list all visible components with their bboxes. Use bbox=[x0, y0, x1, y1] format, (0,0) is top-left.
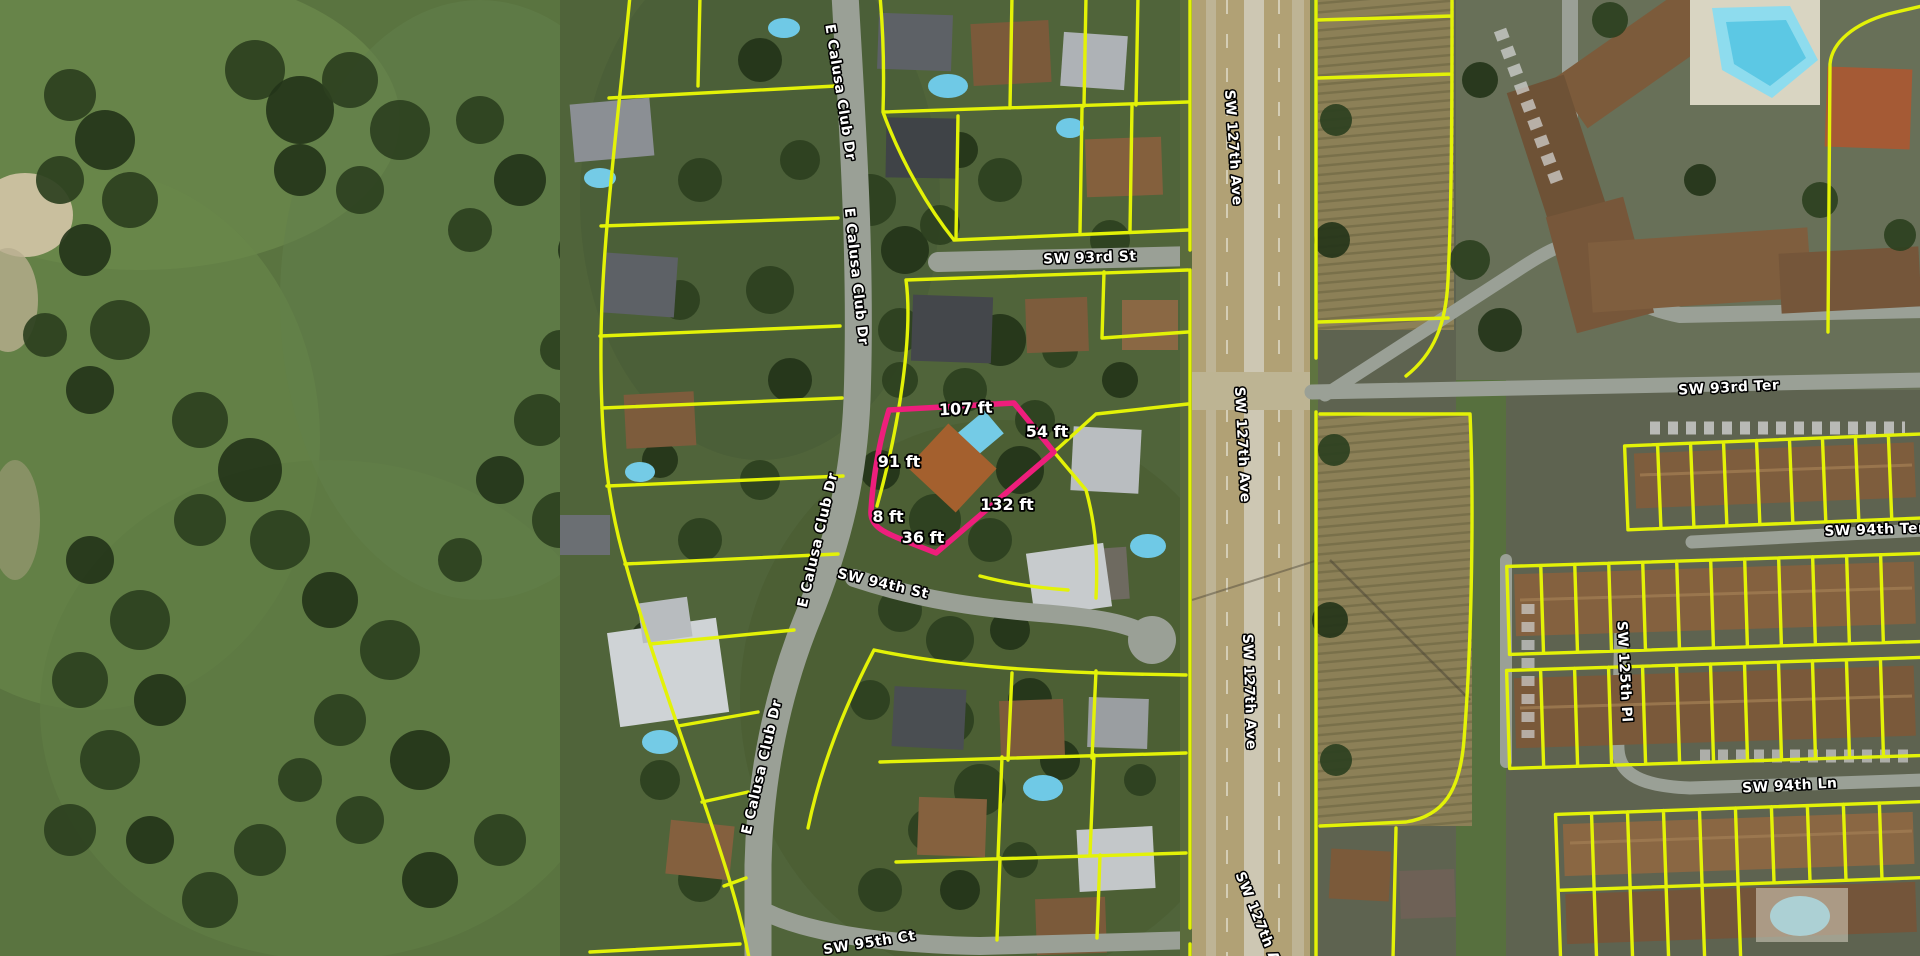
dim-label-107ft: 107 ft bbox=[938, 398, 993, 420]
street-label-sw-94th-ter: SW 94th Ter bbox=[1824, 520, 1920, 540]
residential-mid-band bbox=[560, 0, 1260, 956]
street-label-sw-93rd-st: SW 93rd St bbox=[1043, 248, 1137, 267]
field-parcel bbox=[1318, 0, 1454, 330]
dim-label-54ft: 54 ft bbox=[1026, 422, 1069, 441]
dim-label-91ft: 91 ft bbox=[878, 452, 921, 471]
aerial-map-canvas[interactable]: 107 ft 54 ft 91 ft 132 ft 8 ft 36 ft E C… bbox=[0, 0, 1920, 956]
dim-label-36ft: 36 ft bbox=[902, 528, 945, 547]
road-cul-de-sac bbox=[1128, 616, 1176, 664]
dim-label-8ft: 8 ft bbox=[872, 507, 904, 526]
dim-label-132ft: 132 ft bbox=[980, 495, 1034, 514]
